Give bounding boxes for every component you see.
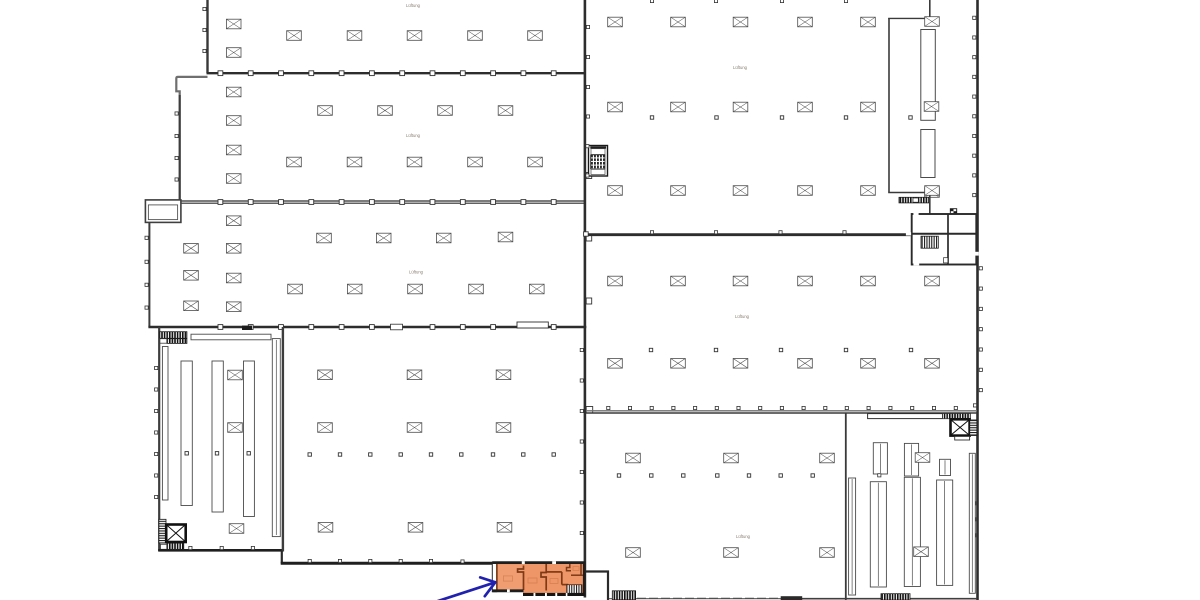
svg-text:Lüftung: Lüftung xyxy=(733,65,748,70)
svg-text:Lüftung: Lüftung xyxy=(736,534,751,539)
svg-text:Lüftung: Lüftung xyxy=(735,314,750,319)
svg-text:Lüftung: Lüftung xyxy=(406,3,421,8)
svg-text:Lüftung: Lüftung xyxy=(409,270,424,275)
svg-text:Lüftung: Lüftung xyxy=(406,133,421,138)
